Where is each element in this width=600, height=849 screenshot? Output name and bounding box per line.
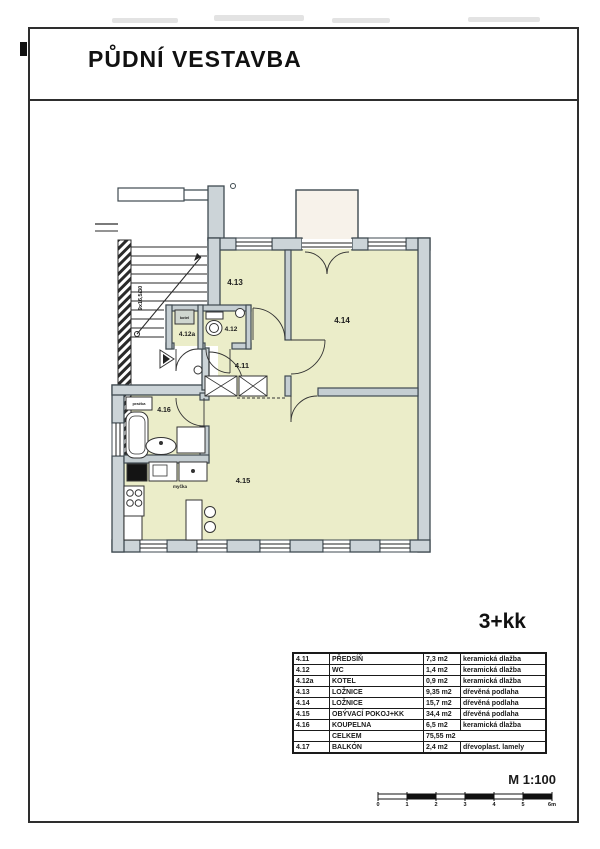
table-cell: keramická dlažba bbox=[461, 665, 546, 676]
window bbox=[236, 238, 272, 250]
table-cell: 6,5 m2 bbox=[424, 720, 461, 731]
table-cell: 1,4 m2 bbox=[424, 665, 461, 676]
floor-plan: 9x16,5/30 bbox=[95, 175, 440, 565]
toilet-tank bbox=[206, 312, 223, 319]
dishwasher-label: myčka bbox=[173, 484, 188, 489]
wc-corner-sink bbox=[236, 309, 245, 318]
window bbox=[380, 540, 410, 552]
table-cell: 75,55 m2 bbox=[424, 731, 546, 742]
table-row: 4.15OBÝVACÍ POKOJ+KK34,4 m2dřevěná podla… bbox=[294, 709, 546, 720]
washer-label: pračka bbox=[133, 401, 147, 406]
left-wall-upper bbox=[208, 238, 220, 308]
window bbox=[140, 540, 167, 552]
table-cell: 4.12a bbox=[294, 676, 330, 687]
boiler-label: kotel bbox=[180, 315, 189, 320]
table-cell: 9,35 m2 bbox=[424, 687, 461, 698]
table-cell: LOŽNICE bbox=[330, 698, 424, 709]
table-cell: KOTEL bbox=[330, 676, 424, 687]
chimney-wall bbox=[208, 186, 224, 240]
table-row: 4.13LOŽNICE9,35 m2dřevěná podlaha bbox=[294, 687, 546, 698]
stool bbox=[205, 507, 216, 518]
room-label-414: 4.14 bbox=[334, 316, 350, 325]
table-row: 4.17BALKÓN2,4 m2dřevoplast. lamely bbox=[294, 742, 546, 753]
room-legend-table: 4.11PŘEDSÍŇ7,3 m2keramická dlažba4.12WC1… bbox=[293, 653, 546, 753]
table-cell: 0,9 m2 bbox=[424, 676, 461, 687]
table-cell: 7,3 m2 bbox=[424, 654, 461, 665]
washbasin bbox=[146, 438, 176, 455]
window bbox=[197, 540, 227, 552]
scale-bar: 0123456m bbox=[372, 791, 562, 815]
stool bbox=[205, 522, 216, 533]
table-cell: keramická dlažba bbox=[461, 676, 546, 687]
kitchen-stove bbox=[127, 464, 147, 481]
window bbox=[260, 540, 290, 552]
scale-tick: 5 bbox=[515, 802, 531, 808]
page-title: PŮDNÍ VESTAVBA bbox=[88, 46, 302, 73]
scan-artifact bbox=[332, 18, 390, 23]
left-wall-bath-lower bbox=[112, 456, 124, 552]
room-label-413: 4.13 bbox=[227, 278, 243, 287]
table-cell: 4.14 bbox=[294, 698, 330, 709]
room-label-415: 4.15 bbox=[236, 476, 251, 485]
table-cell: OBÝVACÍ POKOJ+KK bbox=[330, 709, 424, 720]
scan-artifact bbox=[468, 17, 540, 22]
table-cell: 4.15 bbox=[294, 709, 330, 720]
stair-direction-arrow bbox=[194, 253, 201, 261]
title-separator-line bbox=[28, 99, 579, 101]
right-wall bbox=[418, 238, 430, 552]
table-cell: dřevěná podlaha bbox=[461, 709, 546, 720]
table-cell: 34,4 m2 bbox=[424, 709, 461, 720]
shower-unit bbox=[177, 427, 205, 453]
table-row: CELKEM75,55 m2 bbox=[294, 731, 546, 742]
table-row: 4.12aKOTEL0,9 m2keramická dlažba bbox=[294, 676, 546, 687]
window bbox=[368, 238, 406, 250]
table-cell: dřevěná podlaha bbox=[461, 698, 546, 709]
table-cell: 15,7 m2 bbox=[424, 698, 461, 709]
room-label-416: 4.16 bbox=[157, 407, 171, 414]
table-row: 4.11PŘEDSÍŇ7,3 m2keramická dlažba bbox=[294, 654, 546, 665]
table-row: 4.12WC1,4 m2keramická dlažba bbox=[294, 665, 546, 676]
scale-tick: 2 bbox=[428, 802, 444, 808]
scale-tick: 4 bbox=[486, 802, 502, 808]
table-cell: 2,4 m2 bbox=[424, 742, 461, 753]
scale-tick: 6m bbox=[544, 802, 560, 808]
room-label-412a: 4.12a bbox=[179, 331, 196, 338]
registration-mark bbox=[20, 42, 27, 56]
floor-drain bbox=[194, 366, 202, 374]
table-cell: WC bbox=[330, 665, 424, 676]
table-cell: LOŽNICE bbox=[330, 687, 424, 698]
scale-tick: 0 bbox=[370, 802, 386, 808]
room-label-412: 4.12 bbox=[225, 326, 238, 333]
wc-east-wall bbox=[246, 305, 251, 349]
table-cell: dřevěná podlaha bbox=[461, 687, 546, 698]
table-cell: dřevoplast. lamely bbox=[461, 742, 546, 753]
table-cell: CELKEM bbox=[330, 731, 424, 742]
table-cell: 4.11 bbox=[294, 654, 330, 665]
scan-artifact bbox=[112, 18, 178, 23]
table-cell: PŘEDSÍŇ bbox=[330, 654, 424, 665]
partition-413-414 bbox=[285, 250, 291, 340]
partition-414-415 bbox=[318, 388, 418, 396]
upper-corridor-stub bbox=[118, 184, 236, 241]
table-cell: keramická dlažba bbox=[461, 720, 546, 731]
scale-label: M 1:100 bbox=[460, 772, 556, 787]
scale-tick: 1 bbox=[399, 802, 415, 808]
table-cell: keramická dlažba bbox=[461, 654, 546, 665]
kitchen-counter bbox=[124, 516, 142, 540]
bathroom-north-wall bbox=[112, 385, 208, 395]
kitchen-island bbox=[186, 500, 202, 540]
unit-type-label: 3+kk bbox=[430, 610, 526, 634]
table-row: 4.14LOŽNICE15,7 m2dřevěná podlaha bbox=[294, 698, 546, 709]
window bbox=[112, 423, 124, 456]
table-cell: KOUPELNA bbox=[330, 720, 424, 731]
partition-412a-412 bbox=[198, 305, 203, 349]
table-cell: 4.17 bbox=[294, 742, 330, 753]
table-cell: BALKÓN bbox=[330, 742, 424, 753]
table-cell: 4.16 bbox=[294, 720, 330, 731]
table-row: 4.16KOUPELNA6,5 m2keramická dlažba bbox=[294, 720, 546, 731]
table-cell: 4.13 bbox=[294, 687, 330, 698]
table-cell bbox=[294, 731, 330, 742]
window bbox=[323, 540, 350, 552]
balcony-4-17 bbox=[296, 190, 358, 242]
table-cell: 4.12 bbox=[294, 665, 330, 676]
scan-artifact bbox=[214, 15, 304, 21]
scanned-floorplan-page: { "page": { "title": "PŮDNÍ VESTAVBA", "… bbox=[0, 0, 600, 849]
scale-tick: 3 bbox=[457, 802, 473, 808]
stair-dimension-note: 9x16,5/30 bbox=[138, 286, 144, 310]
balcony-door-opening bbox=[302, 239, 352, 249]
room-label-411: 4.11 bbox=[235, 361, 249, 370]
